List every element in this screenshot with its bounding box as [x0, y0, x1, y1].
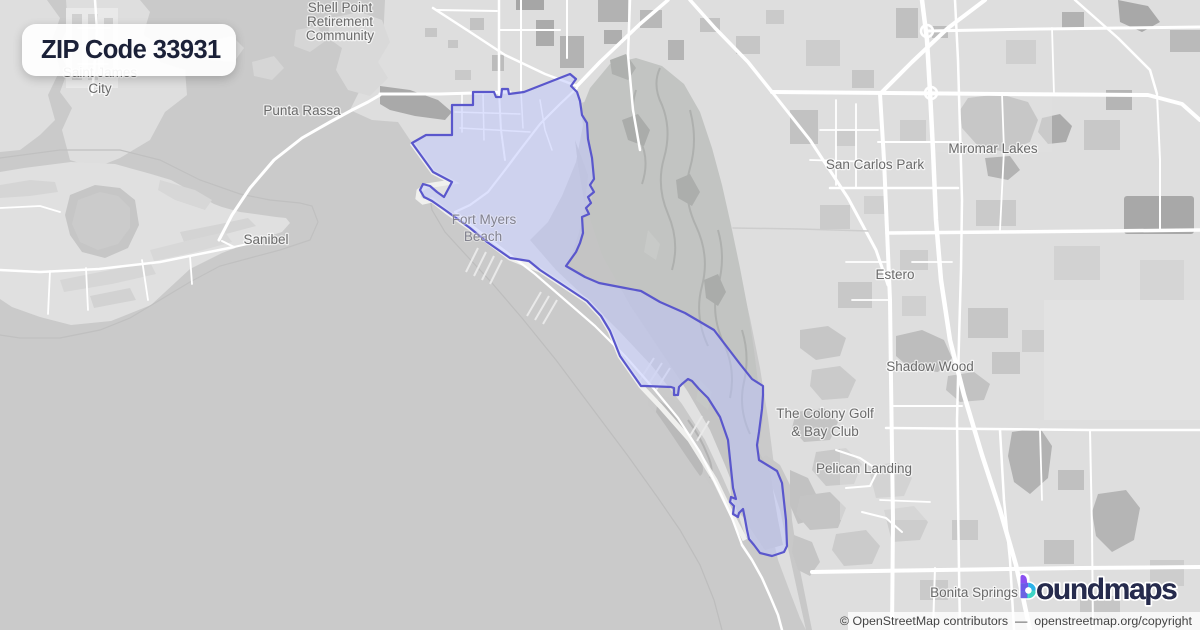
svg-text:Miromar Lakes: Miromar Lakes	[948, 141, 1038, 156]
svg-text:Fort Myers: Fort Myers	[452, 212, 517, 227]
svg-text:Shadow Wood: Shadow Wood	[886, 359, 974, 374]
svg-text:Retirement: Retirement	[307, 14, 373, 29]
svg-text:Estero: Estero	[875, 267, 914, 282]
svg-text:Beach: Beach	[464, 229, 502, 244]
svg-text:Shell Point: Shell Point	[308, 0, 373, 15]
svg-text:Sanibel: Sanibel	[243, 232, 288, 247]
svg-text:Community: Community	[306, 28, 375, 43]
svg-text:Bonita Springs: Bonita Springs	[930, 585, 1018, 600]
svg-text:City: City	[88, 81, 111, 96]
svg-text:Punta Rassa: Punta Rassa	[263, 103, 341, 118]
svg-text:The Colony Golf: The Colony Golf	[776, 406, 874, 421]
svg-text:oundmaps: oundmaps	[1036, 573, 1177, 606]
svg-text:San Carlos Park: San Carlos Park	[826, 157, 925, 172]
svg-text:Pelican Landing: Pelican Landing	[816, 461, 912, 476]
svg-text:& Bay Club: & Bay Club	[791, 424, 859, 439]
